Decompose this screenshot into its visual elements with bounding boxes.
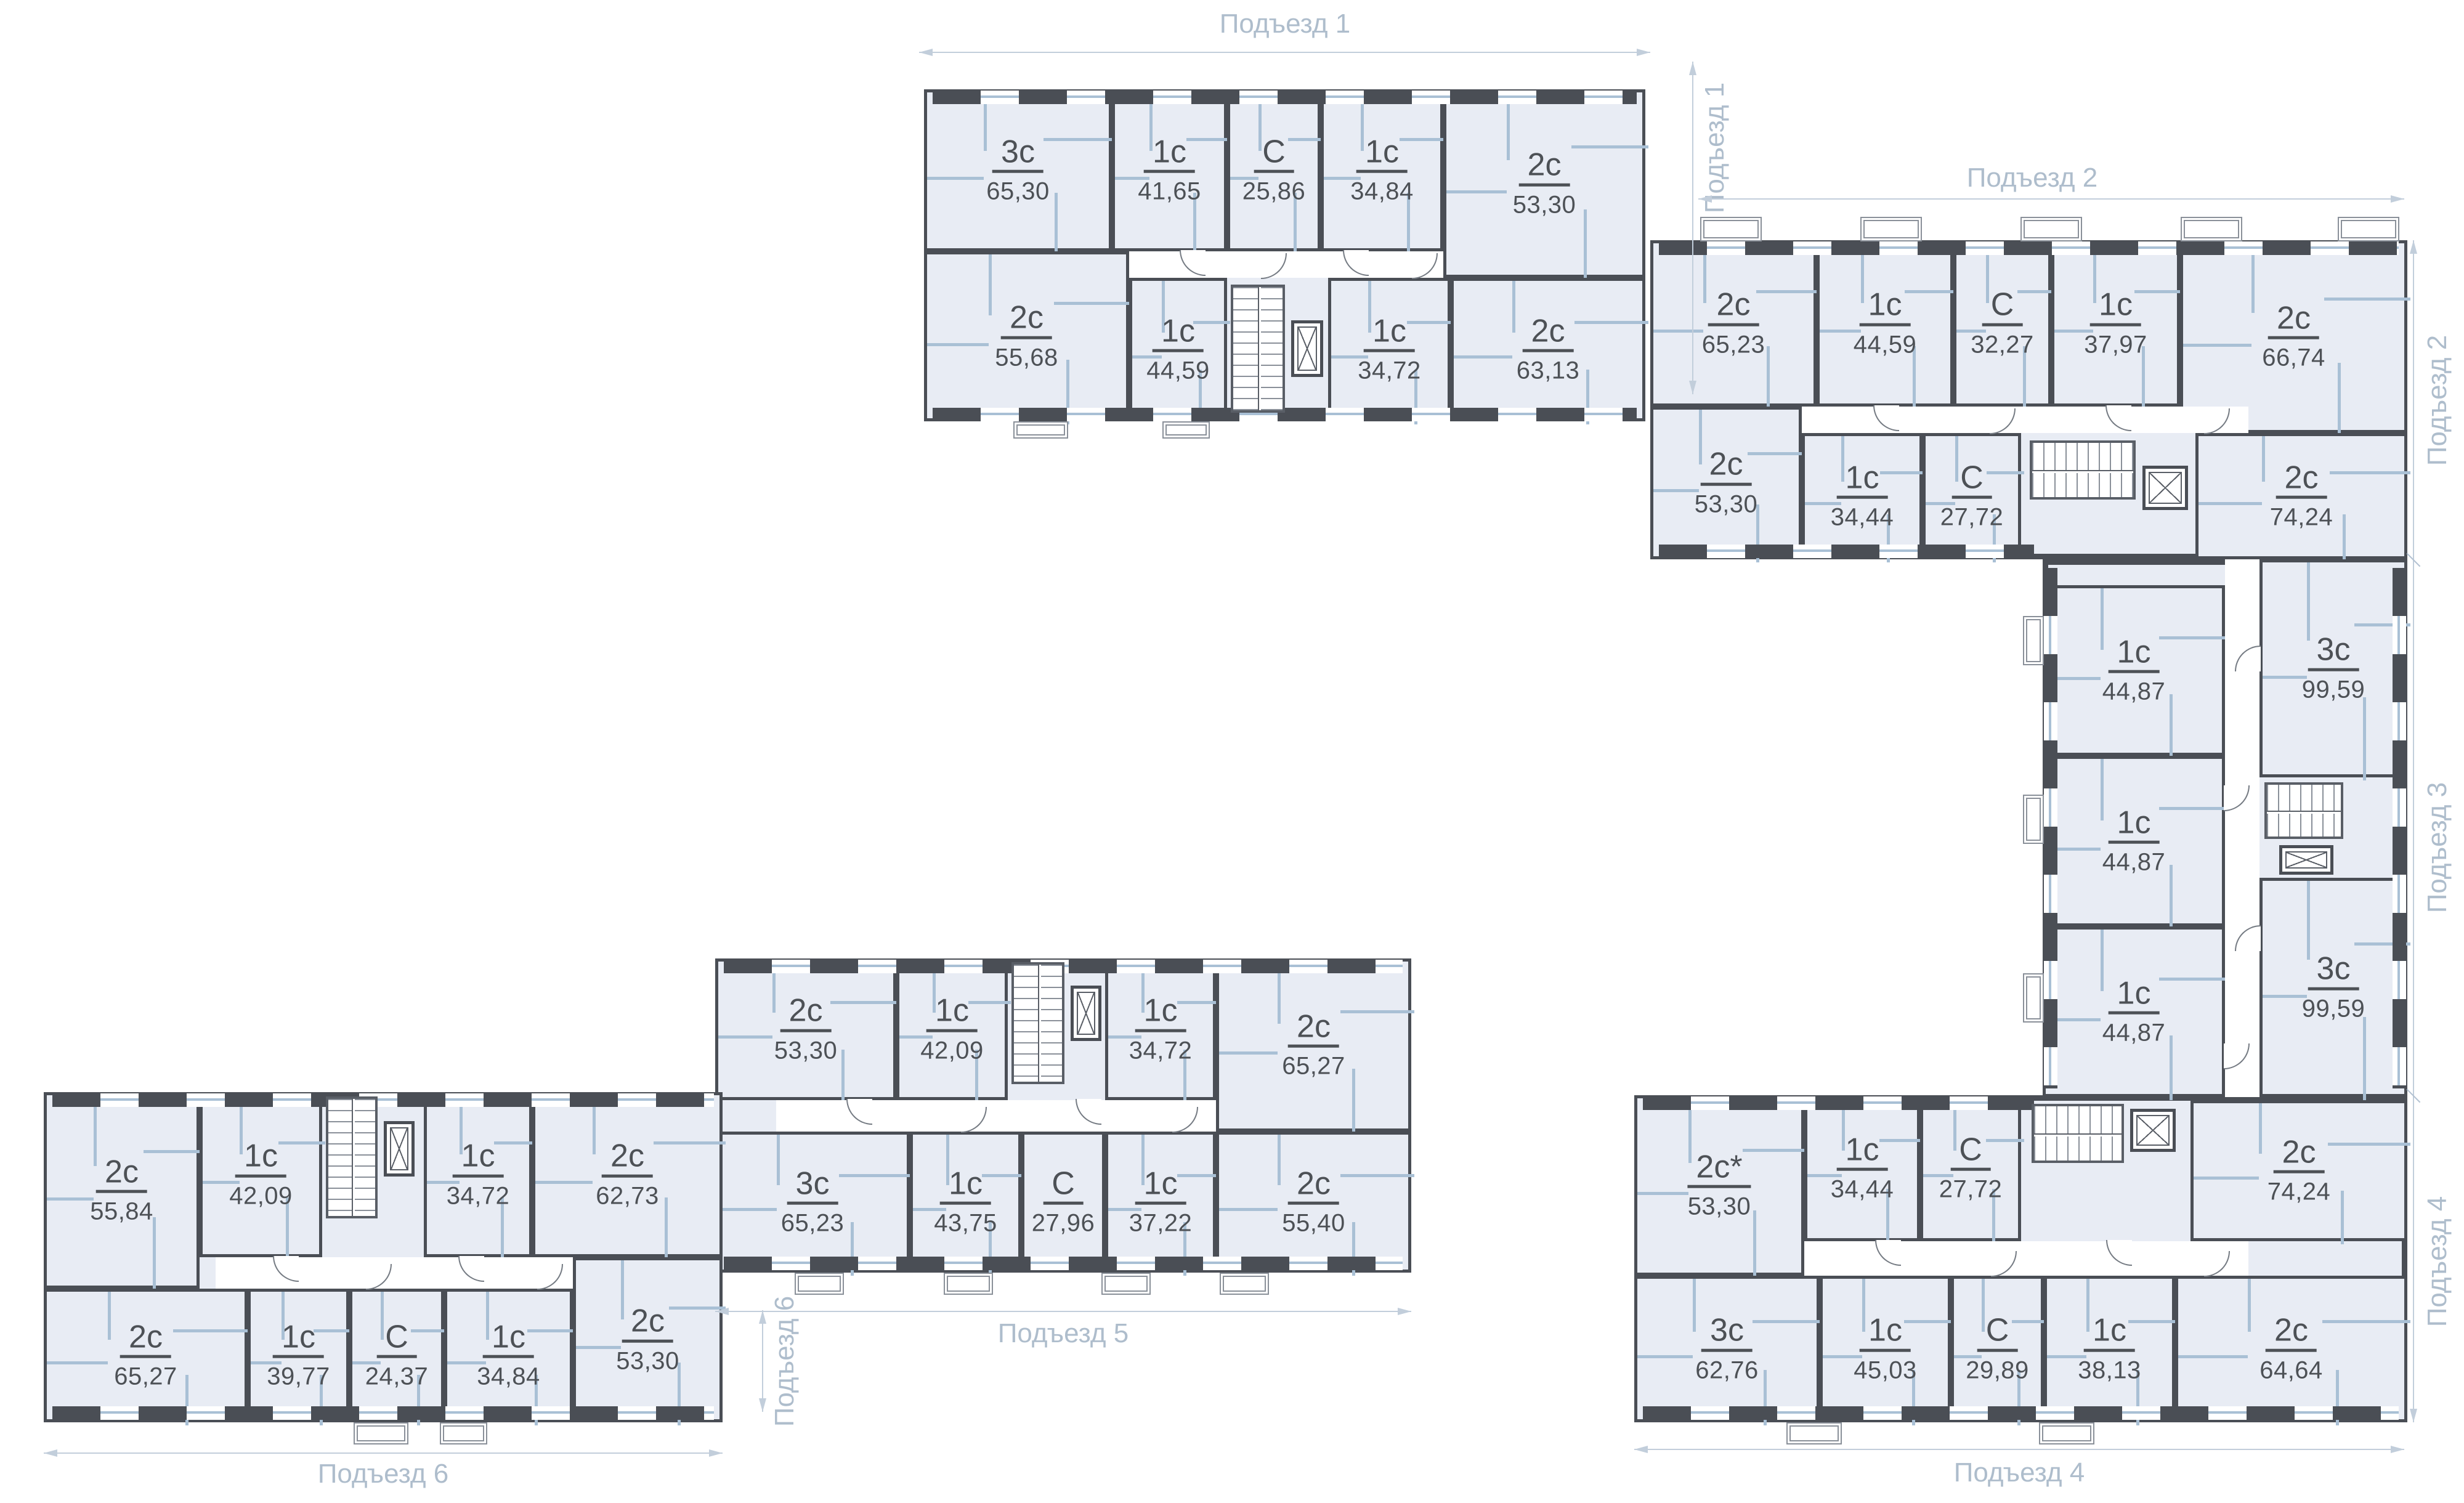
apartment-label: 2с53,30 <box>774 994 838 1065</box>
apartment-area: 24,37 <box>365 1363 429 1391</box>
apartment-label: 2с74,24 <box>2267 1135 2331 1206</box>
door-arc <box>961 1107 987 1133</box>
wall-pier-pattern <box>1659 241 2399 255</box>
apartment-cell[interactable]: 2с65,27 <box>44 1289 248 1422</box>
entrance-porch <box>1700 217 1762 241</box>
elevator-shaft <box>1291 320 1323 377</box>
wall-pier-pattern <box>52 1406 714 1420</box>
apartment-cell[interactable]: 2с55,84 <box>44 1092 200 1289</box>
partition-wall <box>2324 298 2410 301</box>
apartment-area: 43,75 <box>934 1210 997 1238</box>
elevator-cabin-x <box>1077 992 1095 1035</box>
apartment-type: 1с <box>2109 635 2160 673</box>
apartment-type: 2с <box>2266 1314 2317 1352</box>
dimension-line <box>919 52 1650 53</box>
elevator-cabin-x <box>2149 472 2182 504</box>
apartment-area: 34,84 <box>1350 178 1414 206</box>
apartment-area: 32,27 <box>1971 331 2034 359</box>
apartment-cell[interactable]: 2с53,30 <box>1650 407 1802 559</box>
partition-wall <box>654 1141 726 1144</box>
apartment-cell[interactable]: 2с*53,30 <box>1634 1095 1804 1276</box>
partition-wall <box>2343 514 2346 562</box>
apartment-cell[interactable]: 2с64,64 <box>2175 1276 2407 1422</box>
apartment-type: 2с <box>602 1140 653 1178</box>
apartment-area: 37,97 <box>2084 331 2147 359</box>
apartment-type: 2с <box>1523 314 1574 352</box>
entrance-porch <box>1013 421 1068 439</box>
apartment-cell[interactable]: 1с39,77 <box>248 1289 349 1422</box>
apartment-area: 44,87 <box>2102 1019 2166 1047</box>
dimension-line <box>1634 1449 2404 1450</box>
apartment-type: 1с <box>273 1320 324 1358</box>
apartment-label: 2с55,40 <box>1282 1167 1345 1238</box>
entrance-porch <box>2023 616 2044 665</box>
elevator-shaft <box>1071 986 1101 1041</box>
apartment-area: 99,59 <box>2302 676 2365 703</box>
entrance-porch <box>2023 973 2044 1023</box>
dimension-arrow <box>919 49 933 56</box>
partition-wall <box>2262 436 2265 482</box>
apartment-cell[interactable]: 1с34,84 <box>1321 89 1443 251</box>
apartment-cell[interactable]: 2с62,73 <box>532 1092 723 1257</box>
apartment-type: 1с <box>1837 461 1888 499</box>
apartment-area: 74,24 <box>2267 1178 2331 1206</box>
window-band <box>1659 241 2399 255</box>
stair-landing-divider <box>1258 287 1261 410</box>
apartment-label: 2с55,84 <box>90 1155 153 1226</box>
apartment-cell[interactable]: 1с37,97 <box>2051 240 2180 407</box>
dimension-line <box>1698 198 2404 200</box>
apartment-label: 1с45,03 <box>1854 1314 1917 1385</box>
partition-wall <box>927 343 989 346</box>
apartment-label: С25,86 <box>1242 135 1306 206</box>
apartment-label: 2с53,30 <box>616 1305 679 1375</box>
apartment-cell[interactable]: 2с53,30 <box>715 958 896 1100</box>
apartment-type: 1с <box>2084 1314 2135 1352</box>
apartment-area: 64,64 <box>2259 1356 2323 1384</box>
apartment-cell[interactable]: 3с65,23 <box>715 1132 910 1273</box>
apartment-type: 3с <box>992 135 1044 173</box>
door-arc <box>2235 925 2261 951</box>
apartment-label: 3с99,59 <box>2302 633 2365 704</box>
apartment-label: С29,89 <box>1966 1314 2029 1385</box>
apartment-area: 65,23 <box>781 1210 845 1238</box>
wall-pier-pattern <box>1643 1096 2034 1110</box>
apartment-cell[interactable]: 3с62,76 <box>1634 1276 1820 1422</box>
partition-wall <box>2194 1177 2259 1180</box>
apartment-cell[interactable]: 3с65,30 <box>924 89 1112 251</box>
door-arc <box>458 1256 484 1282</box>
partition-wall <box>2159 636 2228 639</box>
apartment-area: 44,87 <box>2102 849 2166 877</box>
partition-wall <box>108 1292 111 1340</box>
apartment-type: 2с <box>1288 1167 1339 1205</box>
dimension-arrow <box>2410 240 2417 254</box>
dimension-arrow <box>715 1308 729 1315</box>
apartment-type: С <box>1043 1167 1084 1205</box>
apartment-label: 1с44,59 <box>1146 314 1210 385</box>
partition-wall <box>718 1035 772 1039</box>
entrance-porch <box>795 1273 844 1295</box>
partition-wall <box>830 1001 899 1004</box>
wall-pier-pattern <box>2393 568 2406 1088</box>
apartment-cell[interactable]: 2с65,27 <box>1216 958 1411 1132</box>
apartment-label: 1с34,72 <box>447 1140 510 1210</box>
entrance-porch <box>1860 217 1922 241</box>
staircase <box>2264 782 2343 839</box>
partition-wall <box>144 1150 203 1153</box>
partition-wall <box>2170 694 2173 759</box>
apartment-type: 1с <box>926 994 978 1032</box>
apartment-area: 53,30 <box>774 1037 838 1064</box>
apartment-label: 2с74,24 <box>2270 461 2333 532</box>
entrance-porch <box>354 1422 408 1444</box>
apartment-label: 2с65,23 <box>1702 288 1765 359</box>
section-title: Подъезд 1 <box>1220 9 1350 39</box>
window-band <box>1659 545 2034 558</box>
apartment-label: 1с43,75 <box>934 1167 997 1238</box>
partition-wall <box>576 1346 621 1349</box>
dimension-line <box>2413 240 2414 1422</box>
apartment-type: 2с <box>2276 461 2327 499</box>
apartment-label: 1с38,13 <box>2078 1314 2141 1385</box>
elevator-cabin-x <box>390 1127 408 1170</box>
entrance-porch <box>2039 1422 2094 1444</box>
elevator-shaft <box>384 1121 415 1177</box>
apartment-area: 99,59 <box>2302 995 2365 1023</box>
partition-wall <box>535 1181 593 1184</box>
apartment-cell[interactable]: 1с34,44 <box>1802 433 1923 559</box>
elevator-cabin-x <box>2136 1115 2170 1146</box>
apartment-type: 2с <box>1001 301 1052 339</box>
partition-wall <box>153 1217 156 1292</box>
apartment-type: 2с <box>780 994 832 1032</box>
partition-wall <box>2330 471 2410 474</box>
apartment-type: 2с <box>1519 148 1570 187</box>
apartment-type: 1с <box>1860 288 1911 326</box>
apartment-type: 1с <box>940 1167 991 1205</box>
section-side-label: Подъезд 2 <box>2422 335 2453 466</box>
apartment-type: 1с <box>1364 314 1415 352</box>
apartment-type: 3с <box>2308 952 2359 991</box>
apartment-label: 1с42,09 <box>920 994 984 1065</box>
door-arc <box>1261 253 1287 279</box>
apartment-cell[interactable]: 1с34,72 <box>424 1092 532 1257</box>
apartment-cell[interactable]: 1с34,44 <box>1804 1095 1920 1241</box>
apartment-label: 1с37,97 <box>2084 288 2147 359</box>
partition-wall <box>2328 1143 2410 1146</box>
apartment-area: 37,22 <box>1129 1210 1193 1238</box>
door-arc <box>1873 405 1899 431</box>
door-arc <box>1412 253 1438 279</box>
apartment-area: 42,09 <box>229 1182 293 1210</box>
apartment-type: 2с <box>120 1320 171 1358</box>
apartment-cell[interactable]: 2с53,30 <box>573 1257 723 1422</box>
apartment-cell[interactable]: 3с99,59 <box>2259 878 2407 1097</box>
apartment-cell[interactable]: 2с55,40 <box>1216 1132 1411 1273</box>
partition-wall <box>2338 363 2341 436</box>
door-arc <box>1990 408 2016 434</box>
apartment-cell[interactable]: 1с44,87 <box>2043 585 2225 756</box>
apartment-cell[interactable]: 1с37,22 <box>1105 1132 1216 1273</box>
partition-wall <box>1571 145 1648 148</box>
apartment-cell[interactable]: 1с38,13 <box>2044 1276 2175 1422</box>
door-arc <box>2204 1251 2230 1277</box>
dimension-arrow <box>1398 1308 1411 1315</box>
apartment-label: 2с53,30 <box>1513 148 1576 219</box>
window-band <box>52 1093 714 1107</box>
partition-wall <box>2159 807 2228 810</box>
apartment-type: С <box>1254 135 1294 173</box>
dimension-arrow <box>44 1449 57 1457</box>
apartment-type: 1с <box>1135 994 1186 1032</box>
door-arc <box>2204 408 2230 434</box>
partition-wall <box>2183 344 2251 347</box>
elevator-cabin-x <box>2285 851 2327 869</box>
partition-wall <box>1756 290 1820 293</box>
partition-wall <box>47 1361 108 1364</box>
partition-wall <box>1653 330 1703 333</box>
dimension-arrow <box>1634 1446 1648 1453</box>
stair-landing-divider <box>1038 965 1041 1082</box>
apartment-label: С27,72 <box>1939 1133 2003 1204</box>
apartment-type: 2с <box>2274 1135 2325 1173</box>
apartment-cell[interactable]: С27,72 <box>1923 433 2021 559</box>
apartment-area: 55,84 <box>90 1198 153 1226</box>
partition-wall <box>1044 138 1115 141</box>
apartment-cell[interactable]: С29,89 <box>1951 1276 2044 1422</box>
apartment-cell[interactable]: 3с99,59 <box>2259 559 2407 777</box>
apartment-cell[interactable]: 2с74,24 <box>2195 433 2407 559</box>
apartment-label: 1с34,44 <box>1831 1133 1894 1204</box>
apartment-label: 1с44,87 <box>2102 635 2166 706</box>
apartment-area: 65,23 <box>1702 331 1765 359</box>
apartment-cell[interactable]: 1с34,72 <box>1105 958 1216 1100</box>
corridor <box>1802 407 2248 433</box>
section-side-label: Подъезд 4 <box>2422 1196 2453 1327</box>
apartment-cell[interactable]: 1с43,75 <box>910 1132 1021 1273</box>
apartment-area: 53,30 <box>1695 490 1758 518</box>
partition-wall <box>2259 1103 2262 1154</box>
door-arc <box>1991 1251 2017 1277</box>
apartment-cell[interactable]: С27,72 <box>1920 1095 2021 1241</box>
window-band <box>2044 568 2057 1088</box>
partition-wall <box>839 1174 913 1177</box>
apartment-cell[interactable]: 1с44,59 <box>1129 278 1227 421</box>
apartment-label: 1с34,72 <box>1129 994 1193 1065</box>
door-arc <box>2235 646 2261 671</box>
partition-wall <box>173 1329 251 1332</box>
partition-wall <box>1512 281 1515 333</box>
wall-pier-pattern <box>2044 568 2057 1088</box>
corridor <box>216 1257 573 1289</box>
apartment-area: 42,09 <box>920 1037 984 1064</box>
partition-wall <box>1653 489 1699 492</box>
elevator-shaft <box>2279 845 2333 875</box>
partition-wall <box>2363 1017 2366 1100</box>
apartment-cell[interactable]: 2с66,74 <box>2180 240 2407 433</box>
door-arc <box>2106 1240 2132 1266</box>
apartment-label: С24,37 <box>365 1320 429 1391</box>
apartment-cell[interactable]: 2с55,68 <box>924 251 1129 421</box>
apartment-label: 2с*53,30 <box>1687 1150 1751 1221</box>
partition-wall <box>1446 190 1507 193</box>
apartment-area: 25,86 <box>1242 178 1306 206</box>
apartment-label: 1с34,72 <box>1358 314 1421 385</box>
apartment-cell[interactable]: 1с44,87 <box>2043 926 2225 1097</box>
apartment-area: 63,13 <box>1517 357 1580 385</box>
wall-pier-pattern <box>1643 1406 2399 1420</box>
elevator-shaft <box>2130 1109 2176 1152</box>
dimension-line <box>762 1310 763 1412</box>
apartment-area: 27,72 <box>1939 1176 2003 1204</box>
section-side-label: Подъезд 3 <box>2422 782 2453 913</box>
apartment-type: 2с <box>1708 288 1759 326</box>
apartment-type: С <box>376 1320 417 1358</box>
apartment-label: 2с65,27 <box>114 1320 177 1391</box>
partition-wall <box>1352 1069 1355 1135</box>
window-band <box>2393 568 2406 1088</box>
stair-landing-divider <box>2034 1133 2122 1136</box>
entrance-porch <box>1162 421 1210 439</box>
apartment-cell[interactable]: С24,37 <box>349 1289 444 1422</box>
apartment-label: 2с65,27 <box>1282 1010 1345 1080</box>
apartment-area: 27,96 <box>1032 1210 1095 1238</box>
wall-pier-pattern <box>52 1093 714 1107</box>
partition-wall <box>2263 676 2307 679</box>
apartment-type: С <box>1982 288 2023 326</box>
partition-wall <box>1278 1135 1281 1185</box>
apartment-label: 2с53,30 <box>1695 448 1758 519</box>
apartment-type: 2с <box>1288 1010 1339 1048</box>
apartment-cell[interactable]: С27,96 <box>1021 1132 1105 1273</box>
apartment-type: 1с <box>2109 806 2160 844</box>
staircase <box>2032 1104 2124 1163</box>
apartment-cell[interactable]: 2с53,30 <box>1443 89 1645 278</box>
apartment-type: С <box>1950 1133 1991 1171</box>
apartment-type: 3с <box>1701 1314 1753 1352</box>
apartment-cell[interactable]: С25,86 <box>1227 89 1321 251</box>
apartment-cell[interactable]: 1с34,72 <box>1328 278 1451 421</box>
partition-wall <box>1753 1320 1823 1323</box>
partition-wall <box>2248 1279 2251 1332</box>
apartment-type: 1с <box>1153 314 1204 352</box>
apartment-type: 2с <box>1701 448 1752 486</box>
apartment-area: 55,40 <box>1282 1210 1345 1238</box>
partition-wall <box>1055 193 1058 254</box>
apartment-type: 2с <box>96 1155 147 1193</box>
apartment-cell[interactable]: 2с63,13 <box>1451 278 1645 421</box>
apartment-cell[interactable]: 1с44,59 <box>1817 240 1953 407</box>
apartment-cell[interactable]: 1с41,65 <box>1112 89 1227 251</box>
partition-wall <box>927 177 984 180</box>
window-band <box>933 91 1637 104</box>
apartment-type: 1с <box>483 1320 534 1358</box>
corridor <box>2225 559 2259 1097</box>
stair-landing-divider <box>2032 470 2133 473</box>
partition-wall <box>665 1197 668 1260</box>
partition-wall <box>2170 865 2173 930</box>
stair-landing-divider <box>2267 811 2341 814</box>
apartment-type: 3с <box>787 1167 838 1205</box>
window-band <box>1643 1096 2034 1110</box>
apartment-cell[interactable]: 1с42,09 <box>896 958 1008 1100</box>
apartment-cell[interactable]: 2с65,23 <box>1650 240 1817 407</box>
apartment-area: 65,30 <box>986 178 1050 206</box>
apartment-area: 66,74 <box>2262 344 2325 372</box>
apartment-area: 44,87 <box>2102 678 2166 706</box>
apartment-area: 29,89 <box>1966 1356 2029 1384</box>
dimension-line <box>44 1452 723 1454</box>
dimension-arrow <box>709 1449 723 1457</box>
section-side-label: Подъезд 6 <box>769 1296 800 1427</box>
apartment-cell[interactable]: 1с34,84 <box>444 1289 573 1422</box>
apartment-area: 53,30 <box>616 1347 679 1375</box>
door-arc <box>2105 405 2131 431</box>
door-arc <box>1343 250 1369 276</box>
window-band <box>1643 1406 2399 1420</box>
apartment-area: 65,27 <box>1282 1053 1345 1080</box>
apartment-type: 1с <box>1135 1167 1186 1205</box>
apartment-label: 1с37,22 <box>1129 1167 1193 1238</box>
partition-wall <box>989 254 992 315</box>
apartment-area: 44,59 <box>1146 357 1210 385</box>
dimension-line <box>715 1311 1411 1312</box>
window-band <box>724 1257 1403 1270</box>
partition-wall <box>2170 1035 2173 1100</box>
wall-pier-pattern <box>724 1257 1403 1270</box>
apartment-cell[interactable]: 1с44,87 <box>2043 756 2225 926</box>
section-title: Подъезд 2 <box>1967 163 2097 193</box>
apartment-label: 3с65,30 <box>986 135 1050 206</box>
partition-wall <box>841 1050 845 1103</box>
apartment-label: 3с62,76 <box>1695 1314 1759 1385</box>
apartment-area: 62,76 <box>1695 1356 1759 1384</box>
apartment-area: 27,72 <box>1940 504 2004 532</box>
apartment-area: 62,73 <box>596 1182 659 1210</box>
apartment-type: 3с <box>2308 633 2359 671</box>
apartment-cell[interactable]: 1с45,03 <box>1820 1276 1951 1422</box>
staircase <box>1231 285 1285 413</box>
partition-wall <box>2159 978 2228 981</box>
partition-wall <box>2322 1320 2410 1323</box>
apartment-area: 41,65 <box>1138 178 1201 206</box>
partition-wall <box>1219 1208 1278 1211</box>
partition-wall <box>1637 1192 1688 1195</box>
dimension-arrow <box>759 1310 766 1324</box>
door-arc <box>366 1264 392 1290</box>
apartment-cell[interactable]: 1с42,09 <box>200 1092 322 1257</box>
section-title: Подъезд 4 <box>1954 1457 2085 1488</box>
door-arc <box>1076 1099 1101 1125</box>
apartment-type: 1с <box>1860 1314 1911 1352</box>
partition-wall <box>47 1197 94 1201</box>
apartment-cell[interactable]: С32,27 <box>1953 240 2051 407</box>
wall-pier-pattern <box>933 91 1637 104</box>
partition-wall <box>777 1135 780 1185</box>
apartment-label: 1с44,87 <box>2102 976 2166 1047</box>
staircase <box>2030 440 2136 500</box>
apartment-area: 44,59 <box>1854 331 1917 359</box>
partition-wall <box>718 1208 777 1211</box>
apartment-type: 2с <box>622 1305 673 1343</box>
apartment-area: 55,68 <box>995 344 1058 371</box>
partition-wall <box>1637 1355 1693 1358</box>
apartment-area: 74,24 <box>2270 504 2333 532</box>
apartment-cell[interactable]: 2с74,24 <box>2190 1100 2407 1241</box>
apartment-area: 65,27 <box>114 1363 177 1391</box>
partition-wall <box>2307 881 2310 960</box>
